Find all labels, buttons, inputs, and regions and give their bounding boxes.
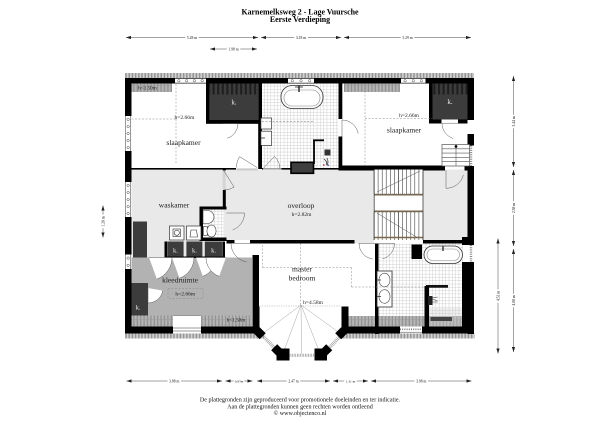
svg-text:Aan de plattegronden kunnen ge: Aan de plattegronden kunnen geen rechten… [227, 404, 373, 410]
svg-text:© www.objectenco.nl: © www.objectenco.nl [274, 410, 327, 417]
svg-text:slaapkamer: slaapkamer [166, 138, 201, 147]
svg-text:h<1.50m: h<1.50m [227, 317, 246, 323]
svg-text:h=2.66m: h=2.66m [175, 115, 195, 121]
svg-text:h<1.50m: h<1.50m [138, 86, 157, 92]
svg-text:h=2.66m: h=2.66m [399, 113, 419, 119]
svg-text:h=2.66m: h=2.66m [175, 292, 195, 298]
svg-text:Eerste Verdieping: Eerste Verdieping [270, 15, 330, 24]
svg-text:2.58 m: 2.58 m [512, 203, 516, 213]
svg-text:k.: k. [447, 98, 453, 106]
svg-text:h=2.82m: h=2.82m [292, 212, 312, 218]
svg-text:2.47 m: 2.47 m [288, 379, 298, 383]
svg-text:bedroom: bedroom [289, 274, 316, 283]
svg-text:3.88 m: 3.88 m [169, 379, 179, 383]
svg-text:4.08 m: 4.08 m [512, 295, 516, 305]
svg-text:master: master [292, 265, 312, 274]
svg-text:1.28 m: 1.28 m [102, 216, 106, 226]
svg-text:k.: k. [211, 248, 216, 255]
svg-text:h=4.58m: h=4.58m [303, 300, 323, 306]
svg-text:overloop: overloop [288, 201, 315, 210]
svg-text:1.31 m: 1.31 m [346, 379, 356, 383]
svg-text:k.: k. [136, 305, 141, 312]
svg-text:1.98 m: 1.98 m [228, 47, 238, 51]
svg-text:5.29 m: 5.29 m [402, 36, 412, 40]
svg-text:3.18 m: 3.18 m [296, 36, 306, 40]
svg-text:3.98 m: 3.98 m [416, 379, 426, 383]
svg-text:0.97m: 0.97m [235, 379, 244, 383]
svg-text:waskamer: waskamer [159, 201, 190, 210]
svg-text:5.28 m: 5.28 m [187, 36, 197, 40]
svg-text:3.44 m: 3.44 m [512, 116, 516, 126]
svg-text:De plattegronden zijn geproduc: De plattegronden zijn geproduceerd voor … [200, 398, 401, 404]
svg-text:slaapkamer: slaapkamer [387, 126, 422, 135]
svg-text:kleedruimte: kleedruimte [162, 276, 198, 285]
svg-text:k.: k. [231, 98, 237, 106]
svg-text:4.52 m: 4.52 m [497, 291, 501, 301]
svg-text:k.: k. [192, 248, 197, 255]
svg-text:k.: k. [173, 248, 178, 255]
